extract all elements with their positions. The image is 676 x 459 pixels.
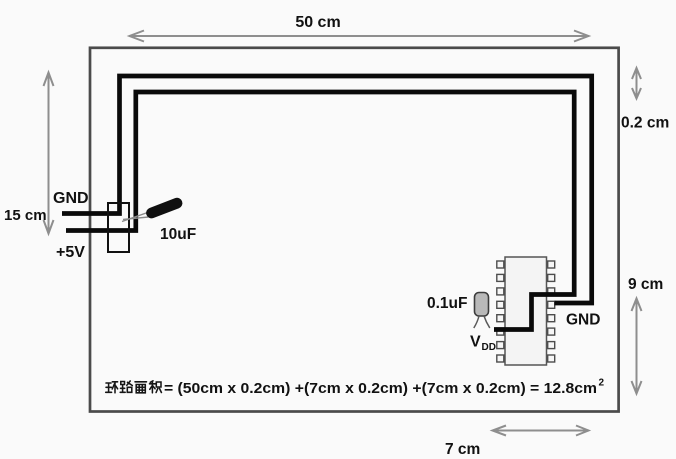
svg-text:0.1uF: 0.1uF bbox=[427, 295, 467, 312]
svg-text:0.2 cm: 0.2 cm bbox=[621, 115, 669, 132]
svg-text:+5V: +5V bbox=[56, 244, 85, 261]
svg-text:GND: GND bbox=[53, 190, 89, 207]
svg-text:GND: GND bbox=[566, 312, 600, 329]
svg-text:50 cm: 50 cm bbox=[295, 14, 340, 31]
svg-text:2: 2 bbox=[599, 378, 605, 389]
svg-text:15 cm: 15 cm bbox=[4, 207, 47, 224]
svg-text:7 cm: 7 cm bbox=[445, 441, 480, 458]
svg-text:10uF: 10uF bbox=[160, 226, 196, 243]
svg-text:= (50cm x 0.2cm) +(7cm x 0.2cm: = (50cm x 0.2cm) +(7cm x 0.2cm) +(7cm x … bbox=[164, 380, 597, 397]
svg-text:V: V bbox=[470, 334, 481, 351]
svg-text:9 cm: 9 cm bbox=[628, 276, 663, 293]
svg-text:DD: DD bbox=[482, 342, 496, 353]
